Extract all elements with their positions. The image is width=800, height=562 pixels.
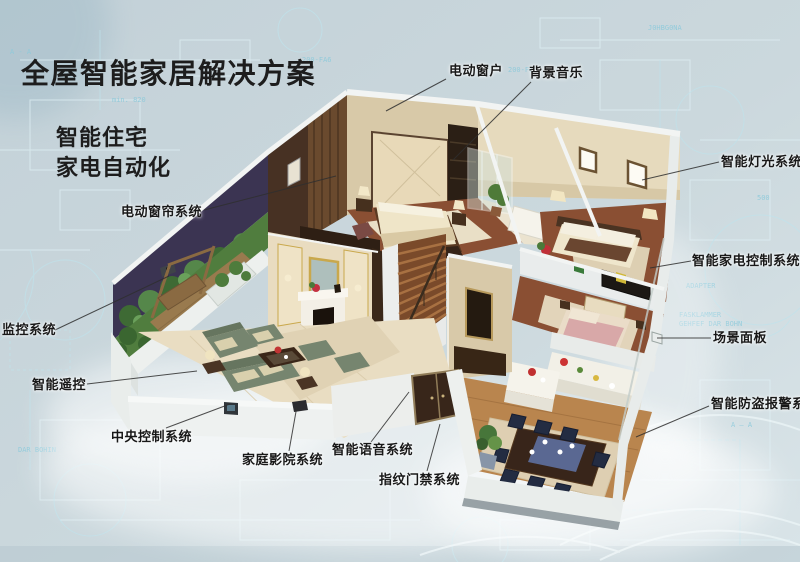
callout-electric-window: 电动窗户 bbox=[449, 64, 503, 78]
callout-smart-voice: 智能语音系统 bbox=[332, 443, 413, 457]
smart-home-poster: 200-FA6200-F60min. 820max. 965FASKLAMMER… bbox=[0, 0, 800, 562]
entry-feature-wall bbox=[448, 256, 512, 380]
svg-text:J0HBG0NA: J0HBG0NA bbox=[648, 24, 683, 32]
svg-text:min. 820: min. 820 bbox=[112, 96, 146, 104]
callout-burglar-alarm: 智能防盗报警系统 bbox=[711, 397, 800, 411]
callout-electric-curtain: 电动窗帘系统 bbox=[121, 205, 202, 219]
callout-scene-panel: 场景面板 bbox=[713, 331, 767, 345]
svg-text:500: 500 bbox=[757, 194, 770, 202]
subtitle-smart-residence: 智能住宅 bbox=[56, 120, 148, 152]
callout-monitoring: 监控系统 bbox=[2, 323, 56, 337]
picture-frame bbox=[580, 148, 596, 172]
wall-art bbox=[466, 288, 492, 340]
av-unit bbox=[292, 400, 308, 412]
callout-background-music: 背景音乐 bbox=[529, 66, 583, 80]
callout-home-theater: 家庭影院系统 bbox=[242, 453, 323, 467]
callout-appliance-control: 智能家电控制系统 bbox=[692, 254, 800, 268]
callout-central-control: 中央控制系统 bbox=[111, 430, 192, 444]
callout-fingerprint-access: 指纹门禁系统 bbox=[379, 473, 460, 487]
picture-frame bbox=[628, 161, 646, 188]
callout-smart-remote: 智能遥控 bbox=[32, 378, 86, 392]
callout-smart-lighting: 智能灯光系统 bbox=[721, 155, 800, 169]
subtitle-appliance-automation: 家电自动化 bbox=[56, 150, 171, 182]
page-title: 全屋智能家居解决方案 bbox=[21, 52, 316, 92]
svg-text:A — A: A — A bbox=[731, 421, 753, 429]
